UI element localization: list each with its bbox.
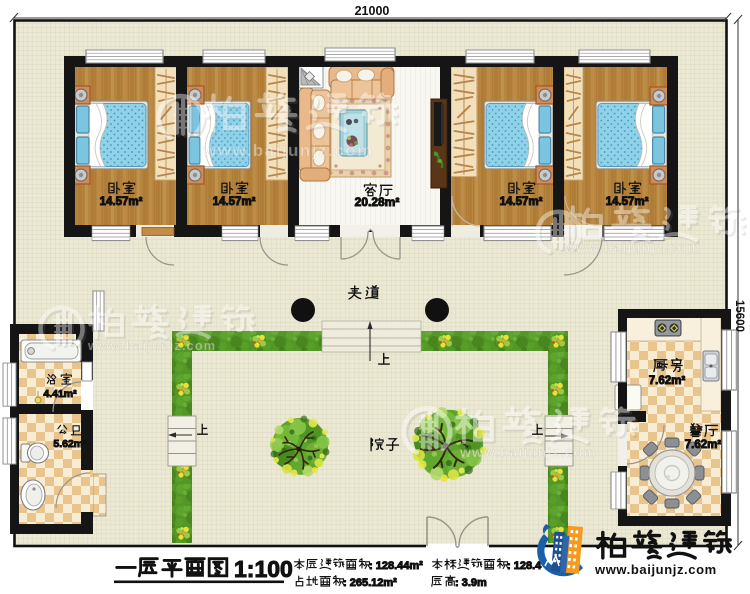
- svg-text:7.62m²: 7.62m²: [649, 375, 686, 387]
- svg-text:www.baijunjz.com: www.baijunjz.com: [87, 338, 216, 353]
- svg-text:www.baijunjz.com: www.baijunjz.com: [202, 141, 374, 160]
- svg-text:5.62m²: 5.62m²: [53, 438, 87, 450]
- svg-text:1:100: 1:100: [234, 556, 293, 582]
- svg-text:15600: 15600: [733, 300, 745, 332]
- svg-text:7.62m²: 7.62m²: [685, 439, 722, 451]
- svg-text:21000: 21000: [355, 4, 390, 18]
- svg-text:20.28m²: 20.28m²: [355, 195, 400, 209]
- svg-text:: 265.12m²: : 265.12m²: [343, 577, 397, 589]
- svg-text:14.57m²: 14.57m²: [500, 196, 543, 208]
- svg-text:4.41m²: 4.41m²: [43, 388, 77, 400]
- svg-text:www.baijunjz.com: www.baijunjz.com: [459, 444, 597, 460]
- svg-text:www.baijunjz.com: www.baijunjz.com: [563, 239, 701, 255]
- svg-text:: 3.9m: : 3.9m: [455, 577, 487, 589]
- svg-text:14.57m²: 14.57m²: [213, 196, 256, 208]
- svg-text:: 128.44m²: : 128.44m²: [369, 560, 423, 572]
- svg-text:: 128.4: : 128.4: [507, 560, 542, 572]
- svg-text:14.57m²: 14.57m²: [100, 196, 143, 208]
- svg-text:14.57m²: 14.57m²: [606, 196, 649, 208]
- svg-text:www.baijunjz.com: www.baijunjz.com: [594, 562, 717, 577]
